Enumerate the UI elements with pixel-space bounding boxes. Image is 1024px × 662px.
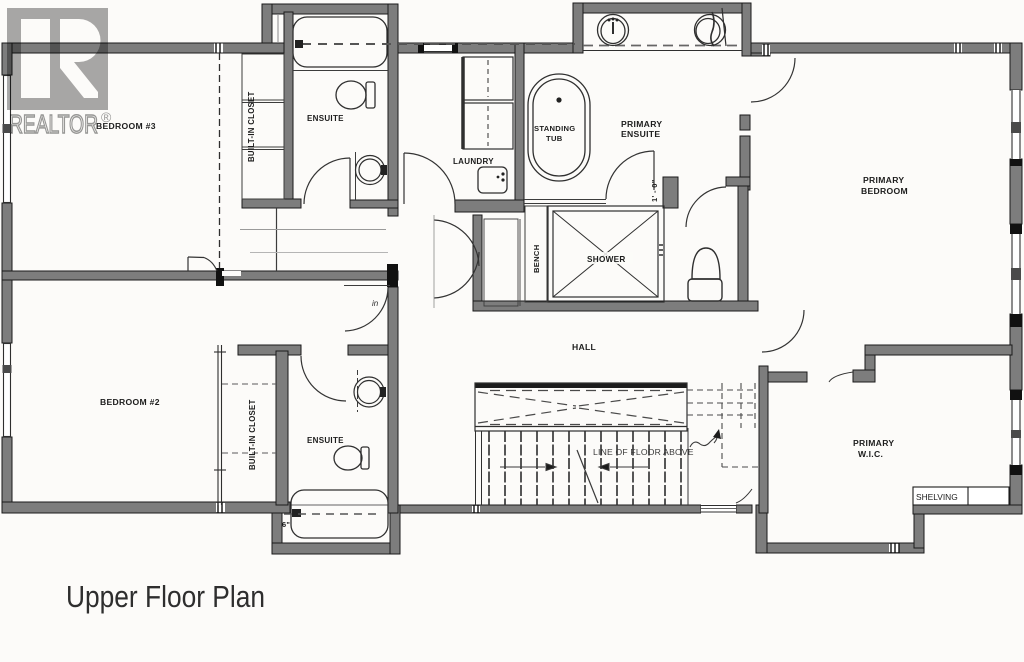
- svg-text:PRIMARY: PRIMARY: [863, 175, 904, 185]
- svg-text:®: ®: [101, 109, 112, 125]
- svg-text:STANDING: STANDING: [534, 124, 576, 133]
- svg-text:SHELVING: SHELVING: [916, 492, 958, 502]
- svg-text:LAUNDRY: LAUNDRY: [453, 157, 494, 166]
- svg-text:BENCH: BENCH: [532, 244, 541, 273]
- svg-text:Upper Floor Plan: Upper Floor Plan: [66, 579, 265, 614]
- svg-text:ENSUITE: ENSUITE: [621, 129, 660, 139]
- svg-text:PRIMARY: PRIMARY: [853, 438, 894, 448]
- svg-text:W.I.C.: W.I.C.: [858, 449, 883, 459]
- svg-text:BUILT-IN CLOSET: BUILT-IN CLOSET: [248, 399, 257, 470]
- svg-text:1' - 0": 1' - 0": [650, 179, 659, 202]
- svg-text:BUILT-IN CLOSET: BUILT-IN CLOSET: [247, 91, 256, 162]
- svg-text:BEDROOM: BEDROOM: [861, 186, 908, 196]
- svg-text:LINE OF FLOOR ABOVE: LINE OF FLOOR ABOVE: [593, 447, 694, 457]
- svg-text:SHOWER: SHOWER: [587, 255, 626, 264]
- svg-text:HALL: HALL: [572, 342, 596, 352]
- svg-text:TUB: TUB: [546, 134, 563, 143]
- svg-text:in: in: [372, 299, 379, 308]
- svg-text:ENSUITE: ENSUITE: [307, 436, 344, 445]
- svg-text:PRIMARY: PRIMARY: [621, 119, 662, 129]
- svg-text:REALTOR: REALTOR: [9, 109, 98, 139]
- svg-text:BEDROOM #2: BEDROOM #2: [100, 397, 160, 407]
- svg-text:ENSUITE: ENSUITE: [307, 114, 344, 123]
- svg-text:6": 6": [282, 520, 290, 529]
